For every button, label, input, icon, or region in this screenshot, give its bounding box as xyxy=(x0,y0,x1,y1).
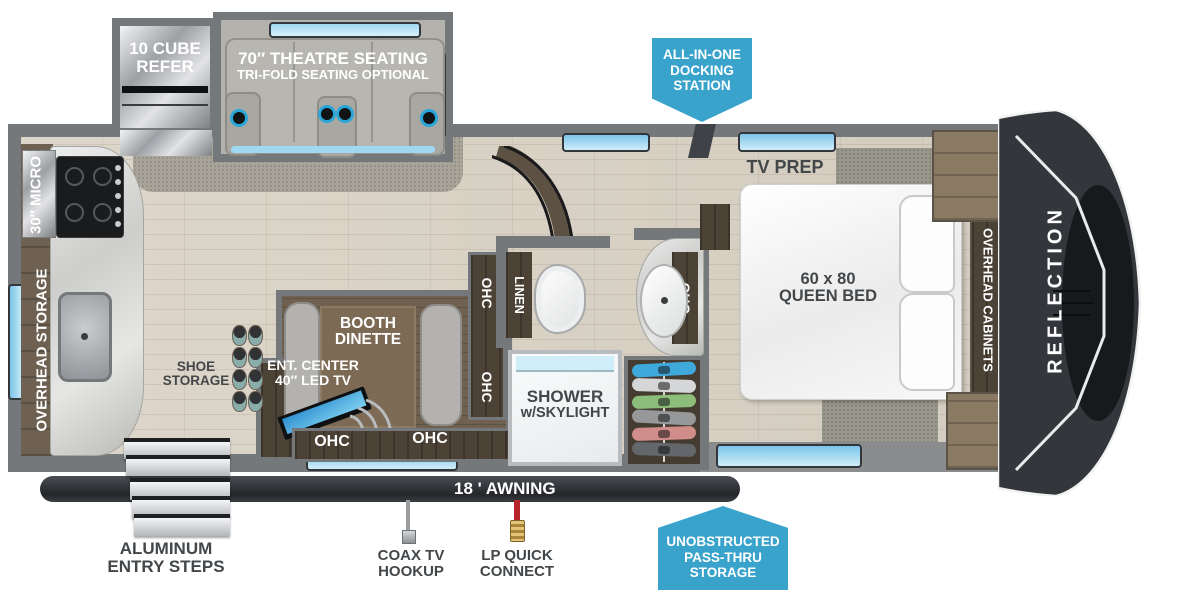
overhead-cabinets-label: OVERHEAD CABINETS xyxy=(981,228,996,372)
docking-station-badge: ALL-IN-ONE DOCKING STATION xyxy=(652,38,752,122)
refer-label: 10 CUBE REFER xyxy=(120,40,210,76)
sink-drain xyxy=(81,333,88,340)
shoe xyxy=(249,326,262,345)
passthru-storage-badge: UNOBSTRUCTED PASS-THRU STORAGE xyxy=(658,506,788,590)
slideout-window xyxy=(269,22,421,38)
stove-knob xyxy=(115,193,121,199)
rv-floorplan: 10 CUBE REFER 70″ THEATRE SEATING TRI-FO… xyxy=(0,0,1200,594)
booth-dinette-label: BOOTH DINETTE xyxy=(318,316,418,349)
ohc-label: OHC xyxy=(302,434,362,451)
burner xyxy=(93,167,112,186)
theatre-slideout: 70″ THEATRE SEATING TRI-FOLD SEATING OPT… xyxy=(213,12,453,162)
coax-label: COAX TV HOOKUP xyxy=(363,548,459,580)
burner xyxy=(65,167,84,186)
ohc-label: OHC xyxy=(479,371,495,402)
couch-front-trim xyxy=(231,146,435,153)
queen-bed: 60 x 80 QUEEN BED xyxy=(740,184,962,400)
hanger xyxy=(632,426,696,441)
refer-slideout: 10 CUBE REFER xyxy=(112,18,218,136)
hanger xyxy=(632,442,696,457)
sink-drain xyxy=(661,297,668,304)
stove-knob xyxy=(115,221,121,227)
bath-sink xyxy=(640,264,688,338)
burner xyxy=(65,203,84,222)
queen-bed-label: 60 x 80 QUEEN BED xyxy=(763,271,893,306)
refrigerator-trim-line xyxy=(122,104,208,106)
ohc-label: OHC xyxy=(400,431,460,448)
overhead-storage-label: OVERHEAD STORAGE xyxy=(34,268,51,431)
brand-label: REFLECTION xyxy=(1045,206,1068,374)
micro-label: 30″ MICRO xyxy=(28,156,45,234)
linen-label: LINEN xyxy=(512,276,526,314)
cupholder xyxy=(339,108,351,120)
stove xyxy=(56,156,124,238)
shoe xyxy=(233,348,246,367)
shoe xyxy=(249,370,262,389)
shoe xyxy=(249,392,262,411)
toilet xyxy=(534,264,586,334)
nightstand xyxy=(700,204,730,250)
stove-knob xyxy=(115,165,121,171)
front-cap xyxy=(998,110,1144,496)
shoe xyxy=(233,392,246,411)
hanger xyxy=(632,409,697,425)
hanger xyxy=(632,378,696,393)
cupholder xyxy=(321,108,333,120)
bath-wall-top xyxy=(498,236,610,248)
shower-label: SHOWER w/SKYLIGHT xyxy=(512,388,618,421)
entry-steps-label: ALUMINUM ENTRY STEPS xyxy=(86,540,246,576)
ohc-label: OHC xyxy=(479,277,495,308)
stove-knob xyxy=(115,207,121,213)
entry-step xyxy=(126,455,230,476)
dinette-bench-right xyxy=(420,304,462,426)
coax-connector xyxy=(402,530,416,544)
kitchen-sink xyxy=(58,292,112,382)
cupholder xyxy=(233,112,245,124)
skylight xyxy=(516,356,614,372)
shoe-storage-label: SHOE STORAGE xyxy=(160,360,232,388)
hanger xyxy=(632,394,696,409)
awning-label: 18 ' AWNING xyxy=(454,480,556,498)
lp-connector xyxy=(510,520,525,542)
wardrobe xyxy=(624,356,704,468)
curved-pocket-door xyxy=(492,146,576,250)
refrigerator-door-line xyxy=(122,86,208,93)
theatre-label: 70″ THEATRE SEATING TRI-FOLD SEATING OPT… xyxy=(229,50,437,81)
lp-label: LP QUICK CONNECT xyxy=(469,548,565,580)
entry-step xyxy=(134,514,230,536)
pillow xyxy=(899,293,955,391)
coax-cable xyxy=(406,500,410,534)
tv-prep-label: TV PREP xyxy=(740,158,830,177)
shower: SHOWER w/SKYLIGHT xyxy=(508,350,622,466)
shoe xyxy=(233,370,246,389)
window xyxy=(716,444,862,468)
stove-knob xyxy=(115,179,121,185)
cupholder xyxy=(423,112,435,124)
window xyxy=(738,132,836,152)
refrigerator-base xyxy=(120,130,212,156)
hanger xyxy=(632,361,697,377)
shoe xyxy=(249,348,262,367)
burner xyxy=(93,203,112,222)
shoe xyxy=(233,326,246,345)
